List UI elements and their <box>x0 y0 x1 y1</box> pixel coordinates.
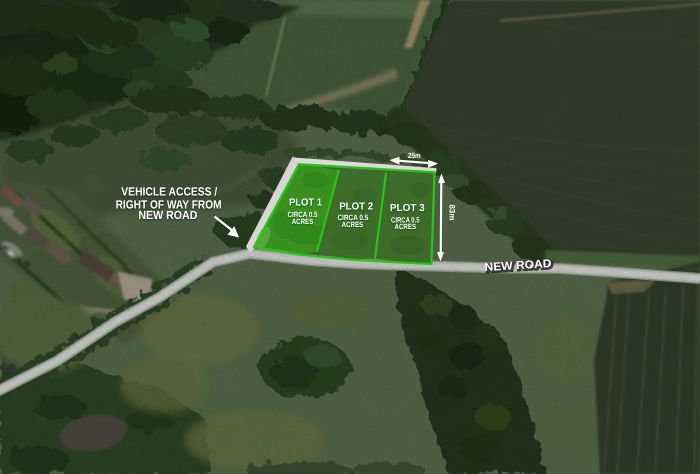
svg-text:VEHICLE ACCESS /: VEHICLE ACCESS / <box>121 185 218 199</box>
svg-text:PLOT 3: PLOT 3 <box>390 203 425 214</box>
svg-text:25m: 25m <box>408 151 421 160</box>
svg-text:PLOT 2: PLOT 2 <box>339 201 373 212</box>
svg-text:ACRES: ACRES <box>395 222 417 231</box>
svg-text:ACRES: ACRES <box>342 220 364 229</box>
svg-text:NEW ROAD: NEW ROAD <box>138 208 197 222</box>
svg-text:ACRES: ACRES <box>292 217 314 226</box>
svg-text:PLOT 1: PLOT 1 <box>289 198 322 209</box>
svg-text:83m: 83m <box>448 204 457 220</box>
